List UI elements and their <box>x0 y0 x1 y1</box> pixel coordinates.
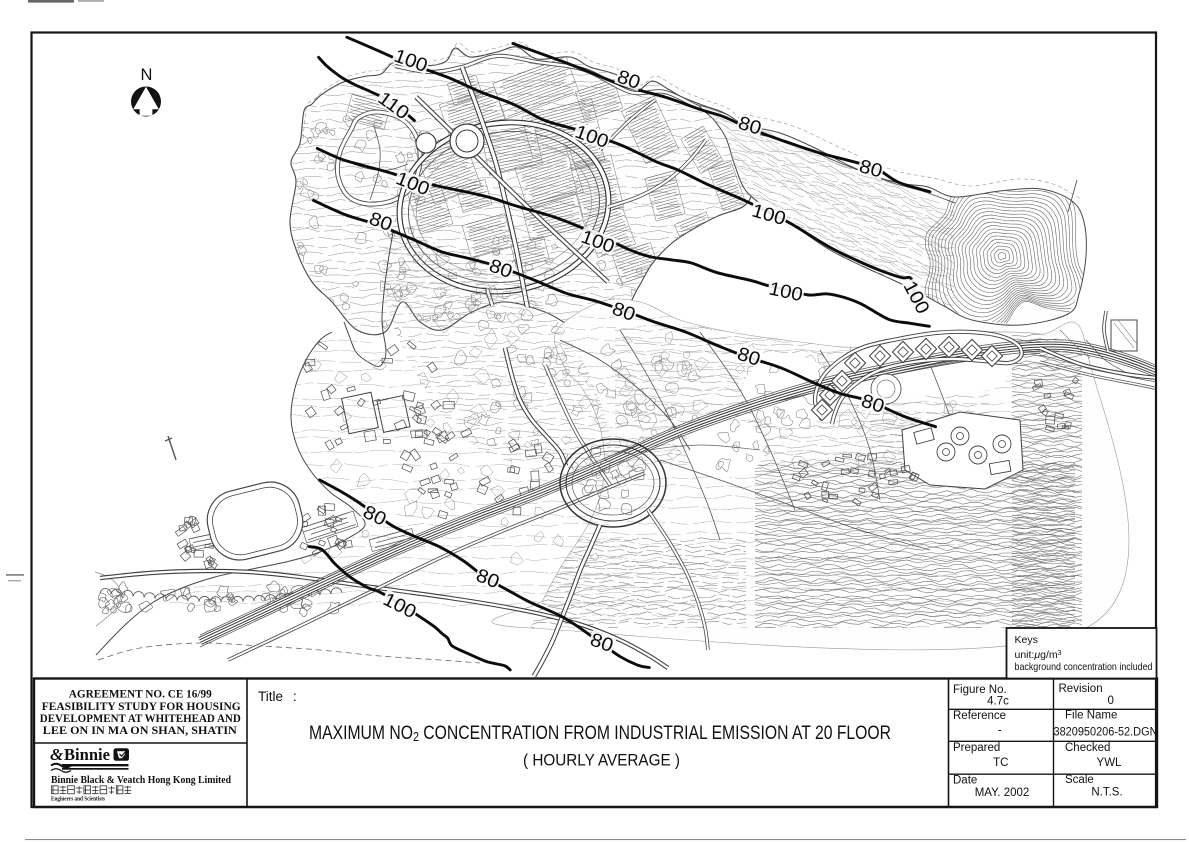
svg-text:TC: TC <box>993 757 1008 769</box>
svg-text:Prepared: Prepared <box>953 742 1000 754</box>
svg-text:MAXIMUM NO2 CONCENTRATION F: MAXIMUM NO2 CONCENTRATION FROM INDUSTRIA… <box>309 723 891 744</box>
svg-text:Scale: Scale <box>1065 774 1094 786</box>
svg-text:Reference: Reference <box>953 710 1006 722</box>
svg-text:background concentration inc: background concentration included <box>1015 661 1153 673</box>
svg-text:Revision: Revision <box>1059 683 1103 695</box>
svg-text:unit:μg/m3: unit:μg/m3 <box>1015 649 1062 661</box>
svg-text:3820950206-52.DGN: 3820950206-52.DGN <box>1054 727 1158 739</box>
svg-text:LEE ON IN MA ON SHAN, SHA: LEE ON IN MA ON SHAN, SHATIN <box>43 725 238 737</box>
svg-text:FEASIBILITY STUDY FOR HOUSI: FEASIBILITY STUDY FOR HOUSING <box>42 701 241 713</box>
svg-text:MAY. 2002: MAY. 2002 <box>975 787 1030 799</box>
svg-text:&: & <box>50 745 64 764</box>
svg-text:Checked: Checked <box>1065 742 1110 754</box>
svg-text:N.T.S.: N.T.S. <box>1091 787 1122 799</box>
svg-text:0: 0 <box>1108 695 1114 707</box>
svg-text:File Name: File Name <box>1065 710 1117 722</box>
svg-text:Binnie: Binnie <box>64 745 110 764</box>
svg-text:AGREEMENT NO. CE 16/99: AGREEMENT NO. CE 16/99 <box>69 688 212 700</box>
svg-text:4.7c: 4.7c <box>987 696 1009 708</box>
svg-text:N: N <box>141 66 153 84</box>
svg-text:Engineers and Scientists: Engineers and Scientists <box>51 797 106 803</box>
svg-text:Keys: Keys <box>1015 634 1038 646</box>
svg-text:DEVELOPMENT AT WHITEHEAD AN: DEVELOPMENT AT WHITEHEAD AND <box>40 713 241 725</box>
svg-text:YWL: YWL <box>1097 757 1123 769</box>
svg-text:Figure No.: Figure No. <box>953 684 1007 696</box>
svg-text:( HOURLY AVERAGE ): ( HOURLY AVERAGE ) <box>523 752 680 770</box>
svg-text:Binnie Black & Veatch Hong Ko: Binnie Black & Veatch Hong Kong Limited <box>51 775 231 786</box>
svg-text:Date: Date <box>953 774 977 786</box>
svg-text:-: - <box>998 725 1002 737</box>
